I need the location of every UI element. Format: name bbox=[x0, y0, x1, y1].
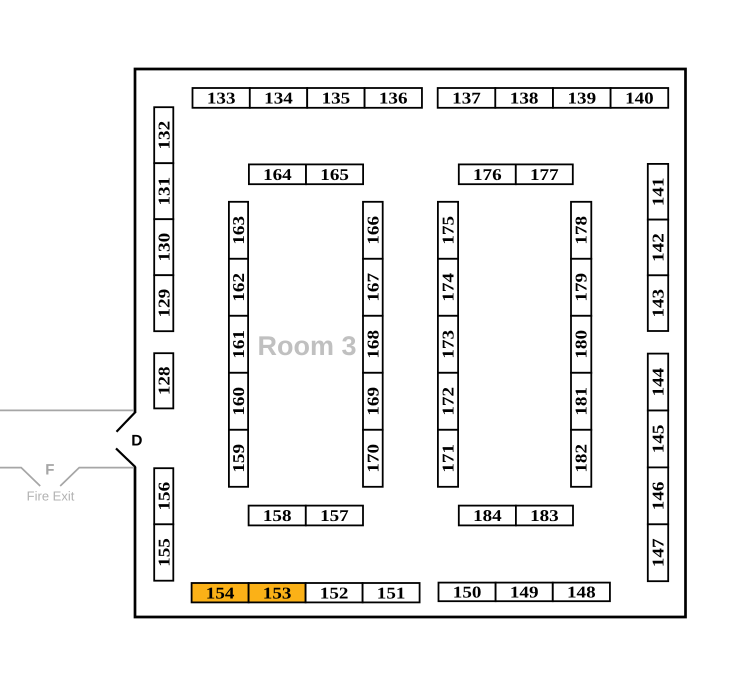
svg-text:D: D bbox=[131, 432, 142, 449]
svg-text:154: 154 bbox=[206, 583, 235, 602]
svg-text:182: 182 bbox=[572, 444, 591, 473]
svg-text:142: 142 bbox=[649, 233, 668, 262]
svg-text:158: 158 bbox=[263, 506, 292, 525]
svg-text:153: 153 bbox=[263, 583, 292, 602]
svg-text:144: 144 bbox=[649, 368, 668, 397]
svg-text:148: 148 bbox=[567, 583, 596, 602]
svg-text:183: 183 bbox=[530, 506, 559, 525]
svg-text:165: 165 bbox=[320, 165, 349, 184]
svg-text:156: 156 bbox=[154, 482, 173, 511]
svg-text:131: 131 bbox=[154, 177, 173, 206]
svg-text:128: 128 bbox=[154, 367, 173, 396]
svg-text:151: 151 bbox=[377, 583, 406, 602]
svg-text:Fire Exit: Fire Exit bbox=[27, 489, 75, 504]
svg-text:163: 163 bbox=[229, 216, 248, 245]
svg-text:138: 138 bbox=[510, 89, 539, 108]
svg-text:130: 130 bbox=[154, 233, 173, 262]
svg-text:139: 139 bbox=[568, 89, 597, 108]
svg-text:146: 146 bbox=[649, 482, 668, 511]
svg-text:147: 147 bbox=[649, 539, 668, 568]
svg-text:150: 150 bbox=[453, 583, 482, 602]
svg-text:155: 155 bbox=[154, 538, 173, 567]
svg-text:174: 174 bbox=[439, 273, 458, 302]
svg-text:141: 141 bbox=[649, 178, 668, 207]
svg-text:179: 179 bbox=[572, 273, 591, 302]
svg-text:140: 140 bbox=[625, 89, 654, 108]
svg-text:159: 159 bbox=[229, 444, 248, 473]
svg-text:175: 175 bbox=[439, 216, 458, 245]
svg-text:134: 134 bbox=[264, 89, 293, 108]
svg-text:176: 176 bbox=[473, 165, 502, 184]
svg-text:149: 149 bbox=[510, 583, 539, 602]
svg-text:172: 172 bbox=[439, 387, 458, 416]
svg-text:170: 170 bbox=[364, 444, 383, 473]
svg-text:157: 157 bbox=[320, 506, 349, 525]
svg-text:152: 152 bbox=[320, 583, 349, 602]
svg-text:178: 178 bbox=[572, 216, 591, 245]
svg-text:168: 168 bbox=[364, 330, 383, 359]
svg-text:137: 137 bbox=[452, 89, 481, 108]
svg-text:133: 133 bbox=[207, 89, 236, 108]
svg-text:180: 180 bbox=[572, 330, 591, 359]
svg-text:171: 171 bbox=[439, 444, 458, 473]
svg-text:181: 181 bbox=[572, 387, 591, 416]
svg-text:Room 3: Room 3 bbox=[257, 331, 356, 361]
svg-text:145: 145 bbox=[649, 425, 668, 454]
svg-text:167: 167 bbox=[364, 273, 383, 302]
svg-text:132: 132 bbox=[154, 121, 173, 150]
svg-text:160: 160 bbox=[229, 387, 248, 416]
svg-text:143: 143 bbox=[649, 289, 668, 318]
svg-text:129: 129 bbox=[154, 289, 173, 318]
svg-text:F: F bbox=[45, 462, 54, 479]
svg-text:166: 166 bbox=[364, 216, 383, 245]
svg-text:136: 136 bbox=[379, 89, 408, 108]
svg-text:164: 164 bbox=[263, 165, 292, 184]
svg-text:161: 161 bbox=[229, 330, 248, 359]
svg-text:184: 184 bbox=[473, 506, 502, 525]
svg-text:173: 173 bbox=[439, 330, 458, 359]
svg-text:135: 135 bbox=[322, 89, 351, 108]
svg-text:177: 177 bbox=[530, 165, 559, 184]
svg-text:169: 169 bbox=[364, 387, 383, 416]
svg-text:162: 162 bbox=[229, 273, 248, 302]
